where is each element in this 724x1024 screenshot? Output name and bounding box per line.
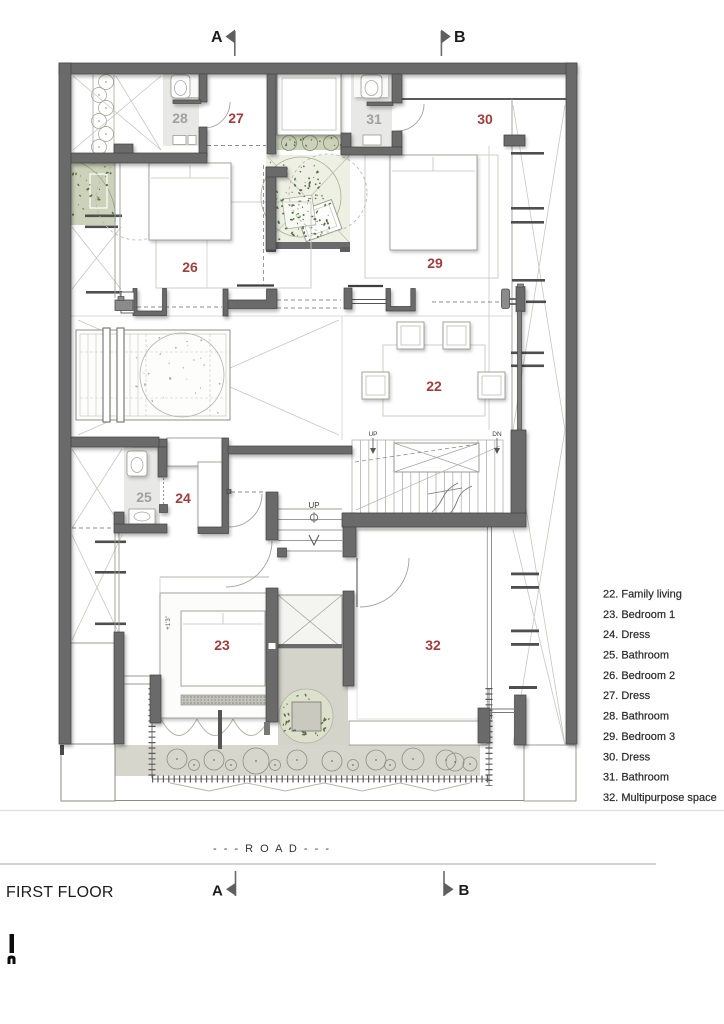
svg-text:23. Bedroom 1: 23. Bedroom 1 (603, 609, 675, 621)
svg-text:25. Bathroom: 25. Bathroom (603, 650, 669, 662)
svg-text:- - - R O A D - - -: - - - R O A D - - - (213, 843, 331, 855)
svg-text:UP: UP (308, 501, 319, 510)
svg-text:24: 24 (175, 490, 191, 506)
svg-text:27. Dress: 27. Dress (603, 690, 651, 702)
svg-text:30. Dress: 30. Dress (603, 751, 651, 763)
svg-text:31: 31 (366, 111, 382, 127)
svg-text:A: A (212, 883, 223, 900)
svg-text:32: 32 (425, 637, 441, 653)
svg-text:22. Family living: 22. Family living (603, 589, 682, 601)
svg-text:26: 26 (182, 259, 198, 275)
svg-text:DN: DN (492, 431, 502, 438)
svg-text:+1’3”: +1’3” (166, 616, 172, 630)
svg-text:27: 27 (228, 110, 244, 126)
svg-text:B: B (459, 882, 470, 899)
svg-text:FIRST FLOOR: FIRST FLOOR (6, 884, 114, 901)
svg-text:23: 23 (214, 637, 230, 653)
svg-text:B: B (454, 29, 466, 46)
svg-text:29. Bedroom 3: 29. Bedroom 3 (603, 731, 675, 743)
svg-text:24. Dress: 24. Dress (603, 629, 651, 641)
svg-text:32. Multipurpose space: 32. Multipurpose space (603, 792, 717, 804)
svg-text:28: 28 (172, 110, 188, 126)
svg-text:29: 29 (427, 255, 443, 271)
svg-text:25: 25 (136, 489, 152, 505)
svg-text:UP: UP (368, 431, 377, 438)
svg-text:26. Bedroom 2: 26. Bedroom 2 (603, 670, 675, 682)
svg-text:22: 22 (426, 378, 442, 394)
svg-text:30: 30 (477, 111, 493, 127)
svg-text:28. Bathroom: 28. Bathroom (603, 711, 669, 723)
svg-text:31. Bathroom: 31. Bathroom (603, 772, 669, 784)
svg-text:A: A (211, 29, 223, 46)
